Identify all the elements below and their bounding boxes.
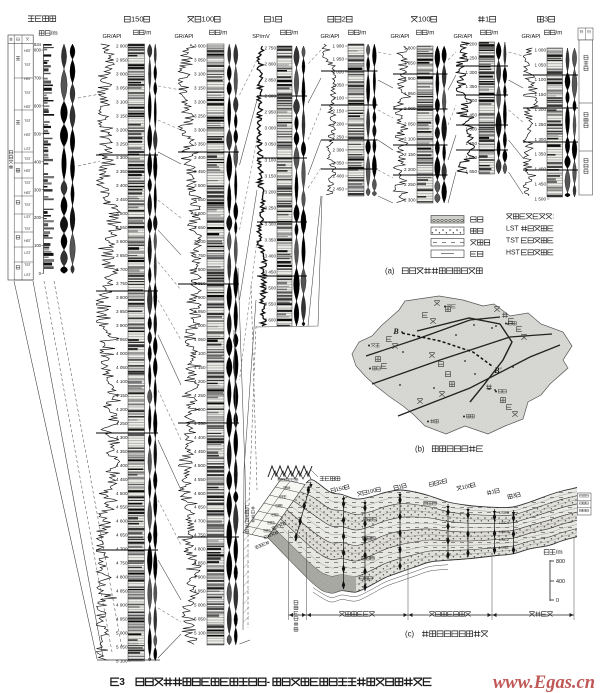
svg-text:3 650: 3 650 (116, 253, 128, 258)
svg-text:LST: LST (24, 251, 30, 255)
svg-text:4 950: 4 950 (194, 589, 206, 594)
svg-text:3 750: 3 750 (194, 253, 206, 258)
svg-text:3 800: 3 800 (194, 267, 206, 272)
svg-text:4 500: 4 500 (194, 463, 206, 468)
svg-text:1 300: 1 300 (535, 137, 547, 142)
svg-text:1 000: 1 000 (535, 47, 547, 52)
svg-text:4 250: 4 250 (116, 421, 128, 426)
svg-text:2 100: 2 100 (333, 95, 345, 100)
svg-text:5 000: 5 000 (116, 631, 128, 636)
svg-text:LSC5: LSC5 (499, 510, 509, 515)
svg-text:/m: /m (492, 29, 499, 36)
svg-text:2 750: 2 750 (265, 45, 277, 50)
svg-text:1: 1 (271, 15, 275, 24)
svg-text:/m: /m (556, 549, 563, 556)
svg-text:4 400: 4 400 (194, 435, 206, 440)
svg-text:3 250: 3 250 (116, 141, 128, 146)
svg-text:4 150: 4 150 (194, 365, 206, 370)
svg-text:HST: HST (24, 239, 31, 243)
svg-text:4 650: 4 650 (116, 533, 128, 538)
svg-text:3 750: 3 750 (116, 281, 128, 286)
svg-text:3 500: 3 500 (265, 285, 277, 290)
svg-text:3 950: 3 950 (116, 337, 128, 342)
svg-text:HST: HST (24, 191, 31, 195)
svg-text:HST: HST (24, 77, 31, 81)
svg-text:/m: /m (360, 29, 367, 36)
svg-text:3 700: 3 700 (116, 267, 128, 272)
svg-text:TST: TST (24, 119, 30, 123)
svg-text:2 150: 2 150 (404, 152, 416, 157)
svg-text:4 050: 4 050 (116, 365, 128, 370)
svg-text:4 550: 4 550 (194, 477, 206, 482)
svg-text:4 550: 4 550 (116, 505, 128, 510)
svg-text:3 000: 3 000 (265, 125, 277, 130)
svg-text:/m: /m (428, 29, 435, 36)
svg-text:2 950: 2 950 (265, 109, 277, 114)
svg-text:/m: /m (556, 29, 563, 36)
svg-text:2 800: 2 800 (265, 61, 277, 66)
svg-text:4 300: 4 300 (116, 435, 128, 440)
svg-text:TST: TST (24, 227, 30, 231)
svg-text:LSC4: LSC4 (499, 520, 510, 525)
svg-text:1 250: 1 250 (466, 56, 478, 61)
svg-text:3 550: 3 550 (116, 225, 128, 230)
svg-text:1 450: 1 450 (466, 112, 478, 117)
svg-text:4 700: 4 700 (194, 519, 206, 524)
svg-text:SP/mV: SP/mV (252, 34, 270, 40)
svg-text:1 200: 1 200 (466, 41, 478, 46)
svg-text:2 350: 2 350 (333, 160, 345, 165)
svg-text:3 350: 3 350 (194, 141, 206, 146)
svg-text:3 450: 3 450 (265, 269, 277, 274)
svg-text:3 600: 3 600 (194, 211, 206, 216)
svg-text:B': B' (493, 366, 502, 375)
svg-text:GR/API: GR/API (321, 34, 340, 40)
svg-text:GR/API: GR/API (391, 34, 410, 40)
svg-text:1: 1 (485, 15, 489, 24)
svg-text:3 100: 3 100 (194, 71, 206, 76)
svg-text:4 850: 4 850 (194, 561, 206, 566)
svg-text:3 400: 3 400 (194, 155, 206, 160)
svg-text:2 950: 2 950 (116, 57, 128, 62)
svg-text:4 100: 4 100 (116, 379, 128, 384)
svg-text:3 550: 3 550 (265, 301, 277, 306)
svg-text:3: 3 (544, 15, 548, 24)
svg-text:TST: TST (24, 181, 30, 185)
svg-text:2 400: 2 400 (333, 173, 345, 178)
svg-text::: : (552, 214, 554, 221)
svg-text:800: 800 (556, 559, 565, 565)
svg-text:4 000: 4 000 (194, 323, 206, 328)
svg-text:2 450: 2 450 (333, 186, 345, 191)
svg-text:3 350: 3 350 (116, 169, 128, 174)
svg-text:3 950: 3 950 (194, 309, 206, 314)
svg-text:4 250: 4 250 (194, 393, 206, 398)
svg-text:1 450: 1 450 (535, 182, 547, 187)
svg-text:GR/API: GR/API (175, 34, 194, 40)
svg-text:LSC3: LSC3 (499, 529, 509, 534)
svg-text:HST: HST (24, 169, 31, 173)
svg-text:2 250: 2 250 (404, 182, 416, 187)
svg-text:4 900: 4 900 (116, 603, 128, 608)
svg-text:3 600: 3 600 (116, 239, 128, 244)
svg-text:GR/API: GR/API (103, 34, 122, 40)
svg-text:3 400: 3 400 (265, 253, 277, 258)
svg-text:LST: LST (24, 273, 30, 277)
svg-text:2 050: 2 050 (404, 121, 416, 126)
svg-text:5 050: 5 050 (194, 617, 206, 622)
svg-text:HST: HST (506, 250, 521, 257)
svg-text:4 400: 4 400 (116, 463, 128, 468)
svg-text:2 250: 2 250 (333, 134, 345, 139)
svg-text:4 650: 4 650 (194, 505, 206, 510)
svg-text:3 150: 3 150 (194, 85, 206, 90)
svg-text:3 050: 3 050 (194, 57, 206, 62)
svg-text:1 550: 1 550 (466, 141, 478, 146)
svg-text:4 100: 4 100 (194, 351, 206, 356)
svg-text:/m: /m (51, 30, 58, 37)
svg-text:4 450: 4 450 (116, 477, 128, 482)
svg-text:1 900: 1 900 (333, 43, 345, 48)
svg-text:100: 100 (202, 15, 215, 24)
svg-text:100: 100 (418, 15, 431, 24)
svg-text:3 700: 3 700 (194, 239, 206, 244)
svg-text:3 600: 3 600 (265, 317, 277, 322)
svg-text:3 800: 3 800 (116, 295, 128, 300)
svg-text:3 150: 3 150 (116, 113, 128, 118)
svg-text:(c): (c) (405, 629, 414, 638)
svg-text:4 150: 4 150 (116, 393, 128, 398)
svg-text:400: 400 (556, 579, 565, 585)
svg-text:(b): (b) (415, 444, 425, 453)
svg-text:www.Egas.cn: www.Egas.cn (493, 673, 595, 693)
svg-text:B: B (392, 327, 399, 336)
svg-text:3 000: 3 000 (116, 71, 128, 76)
svg-text:5 100: 5 100 (194, 631, 206, 636)
svg-text:3 250: 3 250 (194, 113, 206, 118)
svg-text:1 600: 1 600 (466, 155, 478, 160)
svg-text:3 450: 3 450 (116, 197, 128, 202)
svg-text:0: 0 (556, 598, 559, 604)
svg-text:3: 3 (119, 677, 125, 688)
svg-text:HST: HST (24, 133, 31, 137)
svg-text:2 850: 2 850 (265, 77, 277, 82)
svg-text:2 150: 2 150 (333, 108, 345, 113)
svg-text:3 300: 3 300 (194, 127, 206, 132)
svg-text:834: 834 (34, 42, 42, 47)
svg-text:4 700: 4 700 (116, 547, 128, 552)
svg-text:1 900: 1 900 (404, 76, 416, 81)
svg-text:1 500: 1 500 (466, 127, 478, 132)
svg-text:3 350: 3 350 (265, 237, 277, 242)
svg-text:1 150: 1 150 (535, 92, 547, 97)
svg-text:GR/API: GR/API (522, 34, 541, 40)
svg-text:/m: /m (292, 29, 299, 36)
svg-text:1 950: 1 950 (333, 56, 345, 61)
svg-text:4 800: 4 800 (116, 575, 128, 580)
svg-text:4 850: 4 850 (116, 589, 128, 594)
svg-text:600: 600 (34, 103, 42, 108)
svg-text:TST: TST (24, 157, 30, 161)
svg-text:3 400: 3 400 (116, 183, 128, 188)
svg-text:3 300: 3 300 (116, 155, 128, 160)
svg-text:4 050: 4 050 (194, 337, 206, 342)
svg-text:2 200: 2 200 (404, 167, 416, 172)
svg-text:/m: /m (221, 29, 228, 36)
svg-text:3 200: 3 200 (116, 127, 128, 132)
svg-text:4 200: 4 200 (194, 379, 206, 384)
svg-text:3 000: 3 000 (194, 43, 206, 48)
svg-text:2 900: 2 900 (116, 43, 128, 48)
svg-text:3 050: 3 050 (265, 141, 277, 146)
svg-text:500: 500 (34, 131, 42, 136)
svg-text:4 600: 4 600 (116, 519, 128, 524)
svg-text:4 200: 4 200 (116, 407, 128, 412)
svg-text:LSC1: LSC1 (499, 545, 509, 550)
svg-text:4 750: 4 750 (116, 561, 128, 566)
svg-text:1 350: 1 350 (535, 152, 547, 157)
svg-text:1 650: 1 650 (466, 169, 478, 174)
svg-text:2 050: 2 050 (333, 82, 345, 87)
svg-text:1 300: 1 300 (466, 70, 478, 75)
svg-text:5 050: 5 050 (116, 645, 128, 650)
svg-text:1 100: 1 100 (535, 77, 547, 82)
svg-text:2: 2 (342, 15, 346, 24)
svg-text:LST: LST (506, 226, 519, 233)
svg-text:GR/API: GR/API (454, 34, 473, 40)
svg-text:5 100: 5 100 (116, 659, 128, 664)
svg-text:400: 400 (34, 159, 42, 164)
svg-text:TST: TST (24, 263, 30, 267)
svg-text:3 550: 3 550 (194, 197, 206, 202)
svg-text:1 800: 1 800 (404, 45, 416, 50)
svg-text:3 900: 3 900 (194, 295, 206, 300)
svg-text:5 000: 5 000 (194, 603, 206, 608)
svg-text:4 500: 4 500 (116, 491, 128, 496)
svg-text:3 150: 3 150 (265, 173, 277, 178)
svg-text:3 500: 3 500 (116, 211, 128, 216)
svg-text:1 850: 1 850 (404, 61, 416, 66)
svg-text:3 050: 3 050 (116, 85, 128, 90)
svg-text:300: 300 (34, 187, 42, 192)
svg-text:(a): (a) (385, 266, 395, 275)
svg-text:TST: TST (506, 238, 520, 245)
svg-text:1 350: 1 350 (466, 84, 478, 89)
svg-text:3 200: 3 200 (265, 189, 277, 194)
svg-text:800: 800 (34, 48, 42, 53)
svg-text:-: - (267, 677, 270, 688)
svg-text:TST: TST (24, 203, 30, 207)
svg-text:200: 200 (34, 215, 42, 220)
svg-text:2 200: 2 200 (333, 121, 345, 126)
svg-text:4 300: 4 300 (194, 407, 206, 412)
svg-text:3 450: 3 450 (194, 169, 206, 174)
svg-text:3 200: 3 200 (194, 99, 206, 104)
svg-text:HST: HST (24, 49, 31, 53)
svg-text:LSC2: LSC2 (499, 537, 509, 542)
svg-text:4 350: 4 350 (116, 449, 128, 454)
svg-text:4 600: 4 600 (194, 491, 206, 496)
svg-text:2 000: 2 000 (333, 69, 345, 74)
svg-text:4 900: 4 900 (194, 575, 206, 580)
svg-text:3 900: 3 900 (116, 323, 128, 328)
svg-text:/m: /m (145, 29, 152, 36)
svg-text:1 400: 1 400 (466, 98, 478, 103)
svg-text:HST: HST (24, 105, 31, 109)
svg-text:4 950: 4 950 (116, 617, 128, 622)
svg-text:TST: TST (24, 91, 30, 95)
svg-text:TST: TST (24, 63, 30, 67)
svg-text:LST: LST (24, 147, 30, 151)
svg-text:3 250: 3 250 (265, 205, 277, 210)
svg-text:150: 150 (131, 15, 144, 24)
svg-text:1 050: 1 050 (535, 62, 547, 67)
svg-text:100: 100 (34, 243, 42, 248)
svg-text:1 500: 1 500 (535, 196, 547, 201)
svg-text:2 100: 2 100 (404, 137, 416, 142)
svg-text:4 000: 4 000 (116, 351, 128, 356)
svg-text:2 300: 2 300 (333, 147, 345, 152)
svg-text:2 300: 2 300 (404, 197, 416, 202)
svg-text:4 450: 4 450 (194, 449, 206, 454)
svg-text:700: 700 (34, 75, 42, 80)
svg-text:3 850: 3 850 (116, 309, 128, 314)
svg-text:3 100: 3 100 (116, 99, 128, 104)
svg-text:3 650: 3 650 (194, 225, 206, 230)
svg-text:1 400: 1 400 (535, 167, 547, 172)
svg-text:1 950: 1 950 (404, 91, 416, 96)
svg-text:1 250: 1 250 (535, 122, 547, 127)
svg-text:4 800: 4 800 (194, 547, 206, 552)
svg-text:LST: LST (24, 215, 30, 219)
svg-text:3 500: 3 500 (194, 183, 206, 188)
